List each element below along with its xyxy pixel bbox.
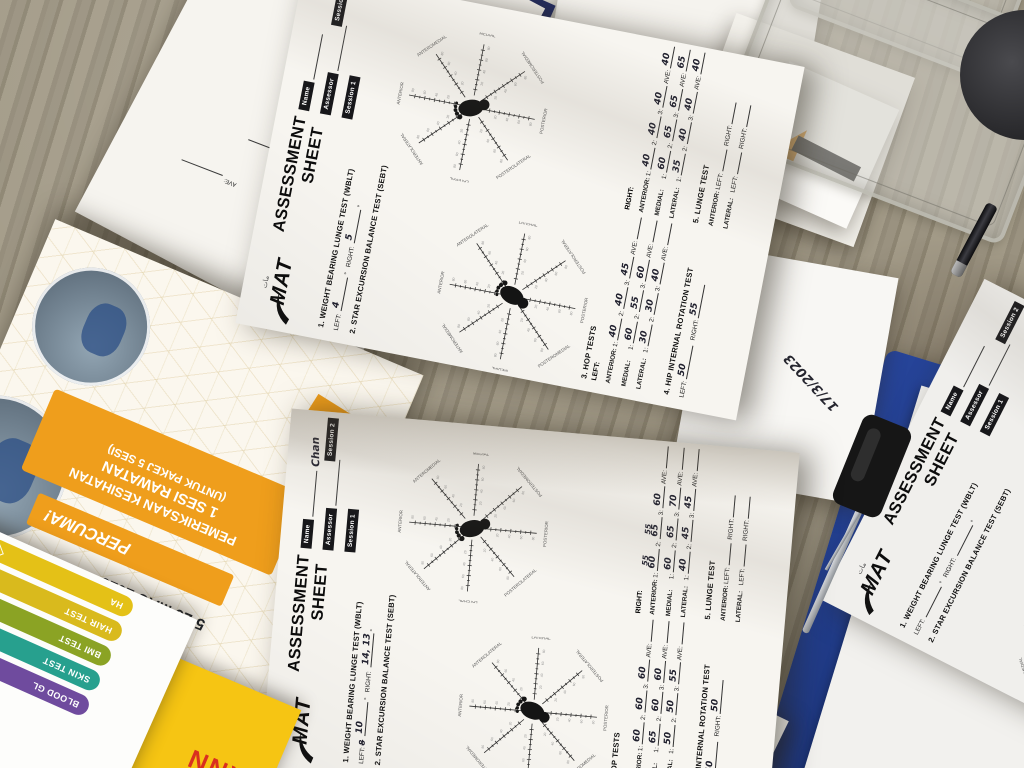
handwritten-value: 60 — [663, 557, 674, 570]
entry-line: 50 — [667, 693, 678, 716]
svg-text:ANTEROMEDIAL: ANTEROMEDIAL — [1017, 656, 1024, 691]
handwritten-value: 50 — [677, 363, 689, 377]
entry-line — [736, 544, 747, 567]
svg-text:20: 20 — [534, 304, 539, 309]
svg-text:LATERAL: LATERAL — [458, 599, 478, 606]
handwritten-value: 55 — [669, 669, 680, 682]
svg-text:ANTERIOR: ANTERIOR — [457, 694, 464, 717]
svg-text:POSTEROLATERAL: POSTEROLATERAL — [503, 567, 538, 597]
svg-text:60: 60 — [492, 149, 497, 154]
svg-text:80: 80 — [542, 649, 546, 653]
entry-line: 55 — [690, 283, 705, 318]
svg-text:80: 80 — [487, 46, 492, 51]
svg-text:40: 40 — [495, 701, 499, 705]
svg-text:20: 20 — [446, 95, 451, 100]
svg-text:20: 20 — [480, 81, 485, 86]
svg-text:20: 20 — [554, 698, 558, 702]
entry-line — [659, 222, 672, 245]
svg-text:ANTEROMEDIAL: ANTEROMEDIAL — [464, 744, 490, 768]
entry-line: 40 — [642, 146, 655, 169]
entry-line: 40 — [654, 84, 667, 107]
svg-text:20: 20 — [479, 129, 484, 134]
svg-text:60: 60 — [533, 338, 538, 343]
handwritten-value: 70 — [668, 494, 679, 507]
entry-line — [689, 448, 700, 471]
handwritten-value: 60 — [653, 668, 664, 681]
svg-text:60: 60 — [579, 719, 583, 723]
handwritten-value: 65 — [676, 55, 688, 69]
svg-text:20: 20 — [520, 318, 525, 323]
svg-text:POSTERIOR: POSTERIOR — [602, 705, 609, 731]
assessment-sheet-bottom: مات MAT ASSESSMENTSHEET NameChan Assesso… — [260, 408, 799, 768]
svg-text:80: 80 — [460, 586, 464, 590]
svg-text:ANTEROLATERAL: ANTEROLATERAL — [471, 640, 503, 668]
handwritten-value: 60 — [653, 493, 664, 506]
handwritten-value: 40 — [653, 91, 665, 105]
entry-line: 40 — [685, 90, 698, 113]
desk-photo-scene: LEFT: RIGHT: AVE: 17/3/2023 مات MAT ASSE… — [0, 0, 1024, 768]
entry-line: 35 — [673, 152, 686, 175]
svg-text:40: 40 — [480, 489, 484, 493]
svg-text:LATERAL: LATERAL — [518, 219, 538, 228]
svg-text:60: 60 — [498, 567, 502, 571]
svg-text:60: 60 — [525, 247, 530, 252]
handwritten-value: 30 — [644, 299, 656, 313]
svg-text:40: 40 — [434, 517, 438, 521]
svg-text:60: 60 — [558, 751, 562, 755]
svg-text:60: 60 — [483, 700, 487, 704]
svg-text:80: 80 — [506, 576, 510, 580]
handwritten-value: 65 — [662, 125, 674, 139]
svg-text:80: 80 — [451, 277, 456, 282]
svg-text:LATERAL: LATERAL — [449, 176, 469, 185]
handwritten-value: 60 — [623, 327, 635, 341]
svg-text:80: 80 — [581, 675, 585, 679]
svg-text:20: 20 — [500, 318, 505, 323]
entry-line — [658, 620, 669, 643]
handwritten-value: 5 — [344, 233, 355, 241]
entry-line: 60 — [637, 690, 648, 713]
entry-line: 40 — [652, 261, 665, 284]
svg-text:20: 20 — [460, 81, 465, 86]
handwritten-value: 40 — [650, 268, 662, 282]
svg-text:40: 40 — [490, 557, 494, 561]
entry-line: 10 — [356, 701, 368, 736]
lunge-test-section: 5. LUNGE TEST ANTERIOR:LEFT: RIGHT: LATE… — [703, 452, 756, 623]
svg-text:80: 80 — [440, 51, 445, 56]
svg-text:80: 80 — [564, 265, 569, 270]
entry-line — [673, 447, 684, 470]
sebt-star-diagram: 20406080ANTERIOR20406080ANTEROMEDIAL2040… — [392, 446, 555, 609]
handwritten-value: 50 — [710, 699, 721, 712]
entry-line: 70 — [670, 487, 681, 510]
svg-text:80: 80 — [421, 561, 425, 565]
entry-line — [643, 619, 654, 642]
entry-line: 40 — [615, 286, 628, 309]
svg-text:POSTERIOR: POSTERIOR — [579, 297, 589, 323]
svg-text:80: 80 — [523, 75, 528, 80]
svg-text:80: 80 — [471, 699, 475, 703]
svg-text:POSTEROLATERAL: POSTEROLATERAL — [560, 238, 587, 275]
svg-text:60: 60 — [557, 309, 562, 314]
svg-text:20: 20 — [493, 115, 498, 120]
svg-text:20: 20 — [519, 687, 523, 691]
svg-text:60: 60 — [461, 574, 465, 578]
svg-text:40: 40 — [482, 70, 487, 75]
svg-text:80: 80 — [521, 491, 525, 495]
entry-line: 30 — [646, 292, 659, 315]
svg-text:20: 20 — [534, 285, 539, 290]
svg-text:60: 60 — [554, 271, 559, 276]
entry-line: 60 — [634, 721, 645, 744]
svg-text:80: 80 — [566, 760, 570, 764]
entry-line: 40 — [648, 115, 661, 138]
entry-line: 40 — [706, 741, 718, 768]
entry-line — [714, 148, 727, 171]
svg-text:40: 40 — [526, 328, 531, 333]
svg-text:60: 60 — [487, 250, 492, 255]
tab-label: HA — [108, 596, 125, 611]
entry-line: 40 — [679, 121, 692, 144]
mat-swoosh-icon — [293, 730, 318, 766]
svg-text:40: 40 — [523, 259, 528, 264]
svg-text:20: 20 — [501, 270, 506, 275]
svg-text:80: 80 — [411, 515, 415, 519]
handwritten-value: 65 — [666, 526, 677, 539]
svg-text:40: 40 — [511, 678, 515, 682]
handwritten-value: 60 — [656, 156, 668, 170]
entry-line — [738, 103, 751, 126]
svg-text:40: 40 — [457, 140, 462, 145]
entry-line: 40 — [693, 51, 706, 74]
name-badge: Name — [299, 81, 315, 111]
handwritten-value: 45 — [681, 527, 692, 540]
svg-text:60: 60 — [504, 668, 508, 672]
handwritten-value: 35 — [672, 159, 684, 173]
handwritten-value: 60 — [635, 265, 647, 279]
entry-line — [740, 496, 751, 519]
svg-text:60: 60 — [490, 737, 494, 741]
entry-line: 45 — [683, 519, 694, 542]
svg-text:40: 40 — [499, 729, 503, 733]
promo-card-text: ANN — [182, 742, 252, 768]
svg-text:60: 60 — [481, 477, 485, 481]
svg-text:80: 80 — [499, 159, 504, 164]
svg-text:40: 40 — [507, 534, 511, 538]
svg-text:80: 80 — [540, 348, 545, 353]
section3-title: 3. HOP TESTS — [608, 732, 622, 768]
svg-text:20: 20 — [508, 721, 512, 725]
svg-text:80: 80 — [481, 744, 485, 748]
handwritten-value: 40 — [705, 761, 716, 768]
svg-text:60: 60 — [541, 661, 545, 665]
entry-line: 60 — [655, 660, 666, 683]
entry-line — [644, 219, 657, 242]
svg-text:20: 20 — [478, 501, 482, 505]
svg-text:20: 20 — [463, 550, 467, 554]
handwritten-value: 50 — [666, 700, 677, 713]
assessor-badge: Assessor — [320, 72, 339, 115]
svg-text:60: 60 — [517, 120, 522, 125]
session1-badge: Session 1 — [345, 509, 360, 553]
svg-text:40: 40 — [563, 690, 567, 694]
entry-line: 40 — [662, 45, 675, 68]
entry-line — [721, 543, 732, 566]
svg-text:80: 80 — [482, 465, 486, 469]
entry-line: 50 — [678, 344, 693, 379]
svg-text:20: 20 — [487, 284, 492, 289]
svg-text:20: 20 — [459, 503, 463, 507]
svg-text:POSTEROMEDIAL: POSTEROMEDIAL — [537, 343, 572, 369]
handwritten-name: Chan — [310, 437, 323, 467]
sheet-title: ASSESSMENTSHEET — [285, 561, 332, 674]
handwritten-value: 40 — [614, 293, 626, 307]
svg-text:40: 40 — [545, 307, 550, 312]
svg-text:40: 40 — [503, 506, 507, 510]
svg-text:60: 60 — [430, 553, 434, 557]
svg-text:60: 60 — [466, 317, 471, 322]
chevron-icon — [0, 544, 4, 558]
svg-text:40: 40 — [540, 673, 544, 677]
svg-text:60: 60 — [519, 535, 523, 539]
entry-line: 14, 13 — [362, 633, 374, 668]
handwritten-value: 65 — [650, 524, 661, 537]
entry-line — [629, 216, 642, 239]
entry-line — [725, 494, 736, 517]
handwritten-value: 4 — [331, 301, 342, 309]
entry-line: 65 — [677, 48, 690, 71]
entry-line: 50 — [665, 724, 676, 747]
handwritten-value: 40 — [678, 558, 689, 571]
handwritten-value: 60 — [647, 555, 658, 568]
sheet-title: ASSESSMENTSHEET — [270, 122, 328, 237]
svg-text:40: 40 — [486, 139, 491, 144]
svg-text:20: 20 — [493, 514, 497, 518]
svg-text:POSTERIOR: POSTERIOR — [542, 521, 549, 547]
entry-line: 65 — [649, 723, 660, 746]
handwritten-value: 40 — [608, 324, 620, 338]
svg-text:80: 80 — [496, 659, 500, 663]
svg-text:40: 40 — [567, 718, 571, 722]
svg-text:80: 80 — [569, 311, 574, 316]
svg-text:80: 80 — [457, 324, 462, 329]
hop-tests-right-block: RIGHT:ANTERIOR:1:55602:55653:60AVE:MEDIA… — [635, 442, 706, 618]
svg-text:80: 80 — [481, 240, 486, 245]
footprint-icon — [493, 278, 534, 312]
footprint-icon — [453, 97, 491, 120]
entry-line: 30 — [640, 323, 653, 346]
svg-text:20: 20 — [543, 732, 547, 736]
sebt-star-diagram: 20406080ANTERIOR20406080ANTEROLATERAL204… — [425, 209, 601, 385]
svg-text:MEDIAL: MEDIAL — [479, 30, 497, 38]
svg-text:80: 80 — [528, 122, 533, 127]
handwritten-value: 10 — [355, 721, 366, 734]
entry-line — [729, 151, 742, 174]
handwritten-value: 40 — [678, 128, 690, 142]
handwritten-value: 14, 13 — [361, 633, 373, 665]
entry-line: 60 — [658, 149, 671, 172]
handwritten-value: 65 — [648, 730, 659, 743]
svg-text:80: 80 — [416, 134, 421, 139]
svg-text:60: 60 — [447, 61, 452, 66]
svg-text:60: 60 — [422, 516, 426, 520]
handwritten-value: 65 — [668, 94, 680, 108]
svg-text:80: 80 — [591, 720, 595, 724]
handwritten-value: 60 — [638, 666, 649, 679]
entry-line: 5565 — [652, 517, 663, 540]
svg-text:40: 40 — [505, 117, 510, 122]
svg-text:20: 20 — [486, 304, 491, 309]
handwritten-value: 40 — [641, 153, 653, 167]
hip-rotation-section: 4. HIP INTERNAL ROTATION TEST LEFT:40 RI… — [692, 625, 731, 768]
svg-text:60: 60 — [423, 90, 428, 95]
entry-line: 65 — [664, 118, 677, 141]
handwritten-value: 60 — [632, 729, 643, 742]
svg-text:POSTEROMEDIAL: POSTEROMEDIAL — [520, 50, 546, 85]
name-badge: Name — [301, 519, 314, 549]
handwritten-date: 17/3/2023 — [781, 350, 842, 413]
entry-line: 60 — [664, 549, 675, 572]
svg-text:ANTEROLATERAL: ANTEROLATERAL — [403, 559, 431, 591]
svg-text:20: 20 — [520, 271, 525, 276]
svg-text:LATERAL: LATERAL — [531, 634, 551, 641]
hop-tests-left-block: LEFT:ANTERIOR:1:602:603:60AVE:MEDIAL:1:6… — [620, 615, 691, 768]
entry-line: 55 — [630, 289, 643, 312]
svg-text:60: 60 — [455, 152, 460, 157]
handwritten-value: 40 — [683, 97, 695, 111]
entry-line: 65 — [667, 518, 678, 541]
svg-text:80: 80 — [527, 235, 532, 240]
svg-text:20: 20 — [507, 702, 511, 706]
svg-text:20: 20 — [483, 548, 487, 552]
svg-text:40: 40 — [451, 494, 455, 498]
svg-text:40: 40 — [476, 310, 481, 315]
entry-line: 60 — [636, 258, 649, 281]
svg-text:20: 20 — [446, 518, 450, 522]
entry-line: 45 — [621, 255, 634, 278]
svg-text:60: 60 — [426, 128, 431, 133]
handwritten-value: 60 — [635, 697, 646, 710]
svg-text:POSTEROLATERAL: POSTEROLATERAL — [495, 153, 532, 180]
handwritten-value: 45 — [684, 496, 695, 509]
svg-text:40: 40 — [462, 562, 466, 566]
entry-line: 5560 — [649, 548, 660, 571]
svg-text:20: 20 — [539, 685, 543, 689]
mat-logo: مات MAT — [255, 232, 303, 323]
handwritten-value: 30 — [638, 330, 650, 344]
entry-line: 45 — [685, 488, 696, 511]
entry-line: 50 — [712, 679, 724, 714]
svg-text:80: 80 — [453, 164, 458, 169]
svg-text:60: 60 — [463, 279, 468, 284]
svg-text:60: 60 — [513, 82, 518, 87]
svg-text:40: 40 — [434, 92, 439, 97]
svg-text:60: 60 — [495, 341, 500, 346]
svg-text:20: 20 — [459, 128, 464, 133]
entry-line: 5 — [346, 208, 361, 243]
svg-text:MEDIAL: MEDIAL — [473, 450, 490, 456]
entry-line: 55 — [670, 662, 681, 685]
entry-line: 60 — [639, 659, 650, 682]
handwritten-value: 40 — [691, 58, 703, 72]
handwritten-value: 60 — [650, 699, 661, 712]
underlay-ave-label: AVE: — [223, 177, 238, 187]
handwritten-value: 50 — [663, 731, 674, 744]
svg-text:80: 80 — [531, 536, 535, 540]
assessor-badge: Assessor — [323, 508, 338, 550]
svg-text:80: 80 — [493, 353, 498, 358]
entry-line — [674, 622, 685, 645]
svg-text:60: 60 — [484, 58, 489, 63]
entry-line: 60 — [625, 320, 638, 343]
svg-text:20: 20 — [555, 717, 559, 721]
svg-text:40: 40 — [522, 746, 526, 750]
svg-text:60: 60 — [521, 758, 525, 762]
entry-line: 40 — [609, 317, 622, 340]
sebt-star-diagram: 20406080ANTERIOR20406080ANTEROMEDIAL2040… — [384, 19, 560, 195]
svg-text:80: 80 — [411, 88, 416, 93]
svg-text:40: 40 — [544, 278, 549, 283]
svg-text:POSTERIOR: POSTERIOR — [539, 108, 549, 134]
svg-text:20: 20 — [523, 734, 527, 738]
svg-text:40: 40 — [475, 282, 480, 287]
entry-line: 60 — [652, 691, 663, 714]
svg-text:40: 40 — [503, 89, 508, 94]
svg-text:MEDIAL: MEDIAL — [491, 366, 509, 374]
svg-text:40: 40 — [551, 741, 555, 745]
svg-text:40: 40 — [436, 121, 441, 126]
handwritten-value: 55 — [689, 302, 701, 316]
entry-line — [724, 100, 737, 123]
svg-text:20: 20 — [493, 95, 498, 100]
svg-text:ANTERIOR: ANTERIOR — [436, 271, 445, 294]
svg-text:40: 40 — [494, 260, 499, 265]
handwritten-value: 55 — [629, 296, 641, 310]
session2-badge: Session 2 — [325, 418, 340, 462]
svg-text:20: 20 — [448, 537, 452, 541]
svg-text:POSTEROLATERAL: POSTEROLATERAL — [574, 648, 604, 683]
sebt-star-diagram: 20406080ANTERIOR20406080ANTEROLATERAL204… — [452, 630, 615, 768]
handwritten-value: 45 — [620, 262, 632, 276]
svg-text:60: 60 — [572, 682, 576, 686]
svg-text:POSTEROMEDIAL: POSTEROMEDIAL — [515, 465, 543, 498]
entry-line: 60 — [654, 486, 665, 509]
svg-text:80: 80 — [436, 475, 440, 479]
svg-text:20: 20 — [446, 114, 451, 119]
svg-text:40: 40 — [453, 71, 458, 76]
entry-line — [658, 446, 669, 469]
hop-tests-left-block: LEFT:ANTERIOR:1:402:403:45AVE:MEDIAL:1:6… — [591, 211, 679, 391]
entry-line: 65 — [670, 87, 683, 110]
svg-text:40: 40 — [439, 545, 443, 549]
svg-text:60: 60 — [512, 498, 516, 502]
svg-text:20: 20 — [495, 533, 499, 537]
entry-line: 4 — [333, 276, 348, 311]
svg-text:60: 60 — [444, 484, 448, 488]
svg-text:40: 40 — [498, 329, 503, 334]
handwritten-value: 40 — [661, 52, 673, 66]
svg-text:ANTEROMEDIAL: ANTEROMEDIAL — [412, 457, 442, 483]
svg-text:ANTEROLATERAL: ANTEROLATERAL — [399, 132, 424, 166]
handwritten-value: 40 — [647, 122, 659, 136]
entry-line: 40 — [680, 551, 691, 574]
